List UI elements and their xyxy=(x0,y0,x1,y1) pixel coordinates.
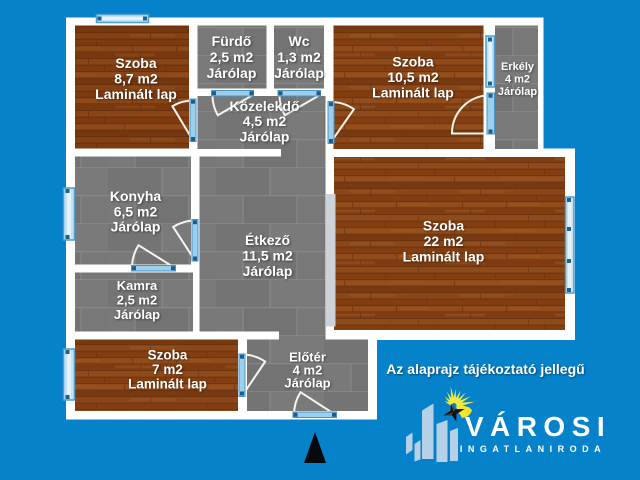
svg-text:22 m2: 22 m2 xyxy=(424,233,464,249)
svg-text:2,5 m2: 2,5 m2 xyxy=(210,49,254,65)
svg-text:VÁROSI: VÁROSI xyxy=(465,411,611,442)
svg-text:Szoba: Szoba xyxy=(392,54,433,70)
svg-text:Járólap: Járólap xyxy=(274,65,324,81)
svg-text:1,3 m2: 1,3 m2 xyxy=(277,49,321,65)
svg-text:Szoba: Szoba xyxy=(115,55,156,71)
svg-text:Járólap: Járólap xyxy=(498,86,537,98)
svg-text:Közelekdő: Közelekdő xyxy=(229,98,299,114)
svg-text:Wc: Wc xyxy=(289,33,310,49)
svg-text:Laminált lap: Laminált lap xyxy=(128,377,207,392)
svg-text:Szoba: Szoba xyxy=(148,348,188,363)
svg-text:6,5 m2: 6,5 m2 xyxy=(114,204,158,220)
svg-text:Fürdő: Fürdő xyxy=(212,33,252,49)
svg-text:Az alaprajz tájékoztató jelleg: Az alaprajz tájékoztató jellegű xyxy=(386,361,584,377)
svg-text:2,5 m2: 2,5 m2 xyxy=(117,293,157,308)
svg-text:Laminált lap: Laminált lap xyxy=(372,85,454,101)
svg-text:4,5 m2: 4,5 m2 xyxy=(243,113,287,129)
svg-text:Szoba: Szoba xyxy=(423,218,464,234)
svg-text:Kamra: Kamra xyxy=(117,278,158,293)
svg-text:Járólap: Járólap xyxy=(243,263,293,279)
svg-text:Laminált lap: Laminált lap xyxy=(403,249,485,265)
svg-text:Járólap: Járólap xyxy=(240,129,290,145)
svg-text:Járólap: Járólap xyxy=(207,65,257,81)
svg-text:7 m2: 7 m2 xyxy=(152,362,183,377)
svg-text:10,5 m2: 10,5 m2 xyxy=(387,69,439,85)
svg-text:Étkező: Étkező xyxy=(245,232,290,248)
svg-text:Járólap: Járólap xyxy=(284,376,330,391)
svg-text:Laminált lap: Laminált lap xyxy=(95,86,177,102)
svg-text:Erkély: Erkély xyxy=(501,61,535,73)
svg-text:Járólap: Járólap xyxy=(111,219,161,235)
svg-text:Konyha: Konyha xyxy=(110,188,162,204)
svg-text:Járólap: Járólap xyxy=(114,307,160,322)
svg-text:4 m2: 4 m2 xyxy=(505,74,530,86)
svg-text:INGATLANIRODA: INGATLANIRODA xyxy=(460,444,606,454)
svg-text:11,5 m2: 11,5 m2 xyxy=(242,248,293,264)
svg-text:8,7 m2: 8,7 m2 xyxy=(114,71,158,87)
